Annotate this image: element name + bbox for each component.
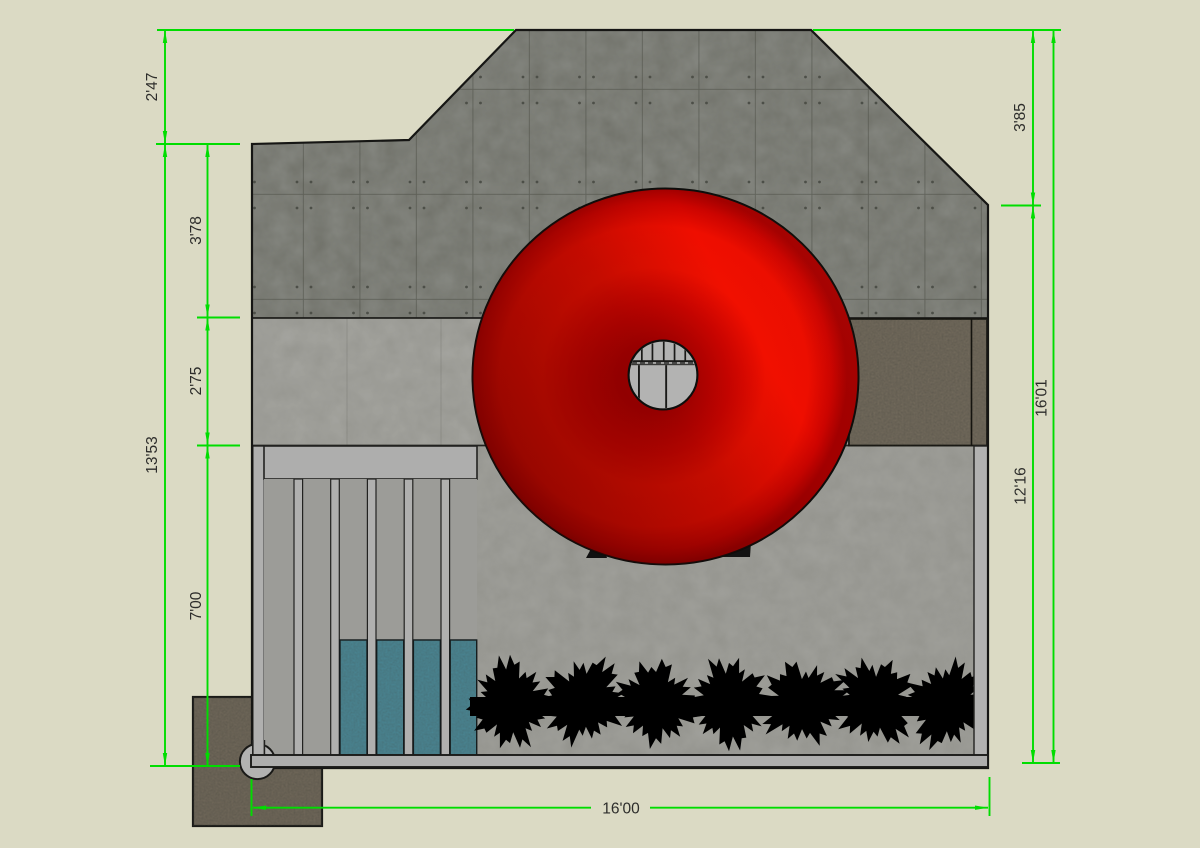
svg-text:3'78: 3'78 xyxy=(188,216,205,245)
svg-text:2'47: 2'47 xyxy=(144,73,161,102)
svg-text:3'85: 3'85 xyxy=(1012,103,1029,132)
svg-text:7'00: 7'00 xyxy=(188,591,205,620)
svg-text:16'00: 16'00 xyxy=(602,801,640,818)
svg-text:16'01: 16'01 xyxy=(1034,379,1051,416)
svg-text:2'75: 2'75 xyxy=(188,367,205,396)
svg-text:12'16: 12'16 xyxy=(1013,467,1030,504)
svg-text:13'53: 13'53 xyxy=(144,436,161,473)
